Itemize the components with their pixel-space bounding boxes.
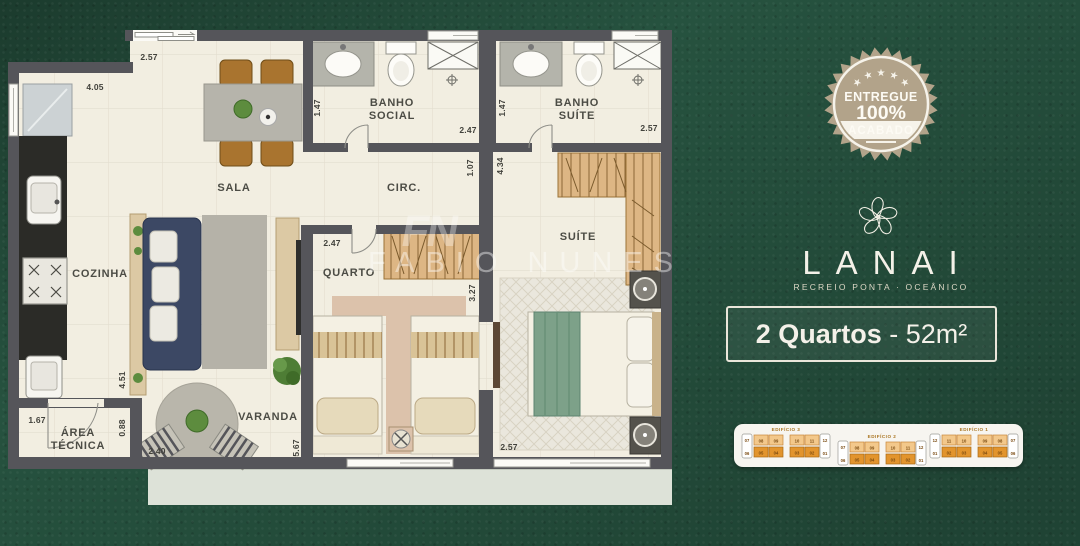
door-opening [48, 399, 104, 407]
room-label-banho-suite-2: SUÍTE [559, 109, 595, 122]
svg-text:01: 01 [933, 451, 938, 456]
wardrobe [384, 231, 482, 279]
dim-label: 2.57 [500, 442, 517, 452]
svg-text:02: 02 [906, 458, 911, 463]
dim-label: 4.34 [495, 157, 505, 174]
svg-text:08: 08 [759, 439, 764, 444]
ceiling-fan-icon [389, 427, 413, 451]
dim-label: 3.27 [467, 284, 477, 301]
sofa-pillows [150, 231, 179, 341]
nightstand-lamp [630, 271, 661, 308]
kitchen-counter [19, 84, 72, 398]
toilet [386, 42, 416, 86]
dim-label: 2.47 [323, 238, 340, 248]
svg-text:10: 10 [891, 446, 896, 451]
table-plant [234, 100, 252, 118]
svg-text:09: 09 [870, 446, 875, 451]
room-label-sala: SALA [217, 182, 250, 194]
dim-label: 1.07 [465, 159, 475, 176]
dim-label: 0.88 [117, 419, 127, 436]
svg-text:04: 04 [774, 451, 779, 456]
plant-pot [186, 410, 208, 432]
svg-text:04: 04 [870, 458, 875, 463]
svg-text:12: 12 [933, 438, 938, 443]
svg-text:11: 11 [947, 439, 952, 444]
room-label-banho-social: BANHO [370, 97, 414, 109]
brand-tagline: RECREIO PONTA · OCEÂNICO [770, 282, 990, 292]
nightstand-lamp [630, 417, 661, 454]
svg-text:02: 02 [947, 451, 952, 456]
svg-text:09: 09 [774, 439, 779, 444]
keyplan-building-label: EDIFÍCIO 3 [772, 425, 801, 432]
svg-text:05: 05 [855, 458, 860, 463]
stove [23, 258, 67, 304]
svg-text:02: 02 [810, 451, 815, 456]
svg-text:09: 09 [983, 439, 988, 444]
svg-text:07: 07 [1011, 438, 1016, 443]
single-bed [313, 316, 382, 454]
dim-label: 1.67 [28, 415, 45, 425]
unit-rooms-label: 2 Quartos [756, 319, 882, 350]
room-label-area-tecnica-2: TÉCNICA [51, 439, 106, 452]
dim-label: 2.40 [148, 446, 165, 456]
plant-bush [273, 357, 301, 385]
unit-area-label: - 52m² [882, 319, 968, 350]
dim-label: 1.47 [497, 99, 507, 116]
room-label-banho-suite: BANHO [555, 97, 599, 109]
svg-text:03: 03 [891, 458, 896, 463]
room-label-suite: SUÍTE [560, 230, 596, 243]
marketing-floorplan-image: SALA COZINHA BANHO SOCIAL BANHO SUÍTE CI… [0, 0, 1080, 546]
console [276, 218, 299, 350]
badge-line2: 100% [856, 102, 906, 124]
room-label-cozinha: COZINHA [72, 268, 128, 280]
room-label-varanda: VARANDA [238, 411, 298, 423]
double-bed [528, 312, 661, 416]
suite-door [493, 322, 500, 388]
svg-text:08: 08 [998, 439, 1003, 444]
svg-text:10: 10 [795, 439, 800, 444]
svg-text:07: 07 [745, 438, 750, 443]
svg-text:03: 03 [795, 451, 800, 456]
svg-text:06: 06 [841, 458, 846, 463]
room-label-area-tecnica: ÁREA [61, 426, 95, 439]
svg-text:01: 01 [823, 451, 828, 456]
laundry-tank [26, 356, 62, 398]
svg-text:12: 12 [919, 445, 924, 450]
svg-text:06: 06 [745, 451, 750, 456]
svg-text:04: 04 [983, 451, 988, 456]
svg-text:06: 06 [1011, 451, 1016, 456]
kitchen-sink [27, 176, 61, 224]
dim-label: 4.51 [117, 371, 127, 388]
svg-text:05: 05 [998, 451, 1003, 456]
room-label-banho-social-2: SOCIAL [369, 110, 415, 122]
brand-name: LANAI [770, 244, 990, 282]
entry-sliding-door [133, 30, 197, 41]
dim-label: 2.47 [459, 125, 476, 135]
svg-text:12: 12 [823, 438, 828, 443]
badge-line3: ACABADO [848, 125, 914, 137]
room-label-quarto: QUARTO [323, 267, 375, 279]
svg-text:07: 07 [841, 445, 846, 450]
svg-text:11: 11 [810, 439, 815, 444]
svg-text:03: 03 [962, 451, 967, 456]
star-icon: ★ [877, 68, 886, 79]
single-bed [411, 316, 479, 454]
dim-label: 1.47 [312, 99, 322, 116]
dim-label: 2.57 [640, 123, 657, 133]
unit-summary-box: 2 Quartos - 52m² [726, 306, 997, 362]
dim-label: 2.57 [140, 52, 157, 62]
svg-text:10: 10 [962, 439, 967, 444]
sink [513, 51, 549, 77]
room-label-circ: CIRC. [387, 182, 421, 194]
keyplan-building-label: EDIFÍCIO 2 [868, 432, 897, 439]
building-keyplans: EDIFÍCIO 3070612010805090410031102EDIFÍC… [734, 424, 1023, 467]
dim-label: 4.05 [86, 82, 103, 92]
delivered-seal-badge: ★★★★★ ENTREGUE 100% ACABADO [806, 29, 956, 179]
living-rug [202, 215, 267, 369]
dining-table [204, 84, 302, 141]
svg-text:05: 05 [759, 451, 764, 456]
svg-text:11: 11 [906, 446, 911, 451]
plumeria-flower-icon [846, 190, 910, 244]
svg-text:01: 01 [919, 458, 924, 463]
living-area [130, 214, 303, 395]
toilet [574, 42, 604, 86]
keyplan-building-label: EDIFÍCIO 1 [960, 425, 989, 432]
dim-label: 5.67 [291, 439, 301, 456]
outside-ledge [148, 469, 672, 505]
svg-text:08: 08 [855, 446, 860, 451]
sink [325, 51, 361, 77]
